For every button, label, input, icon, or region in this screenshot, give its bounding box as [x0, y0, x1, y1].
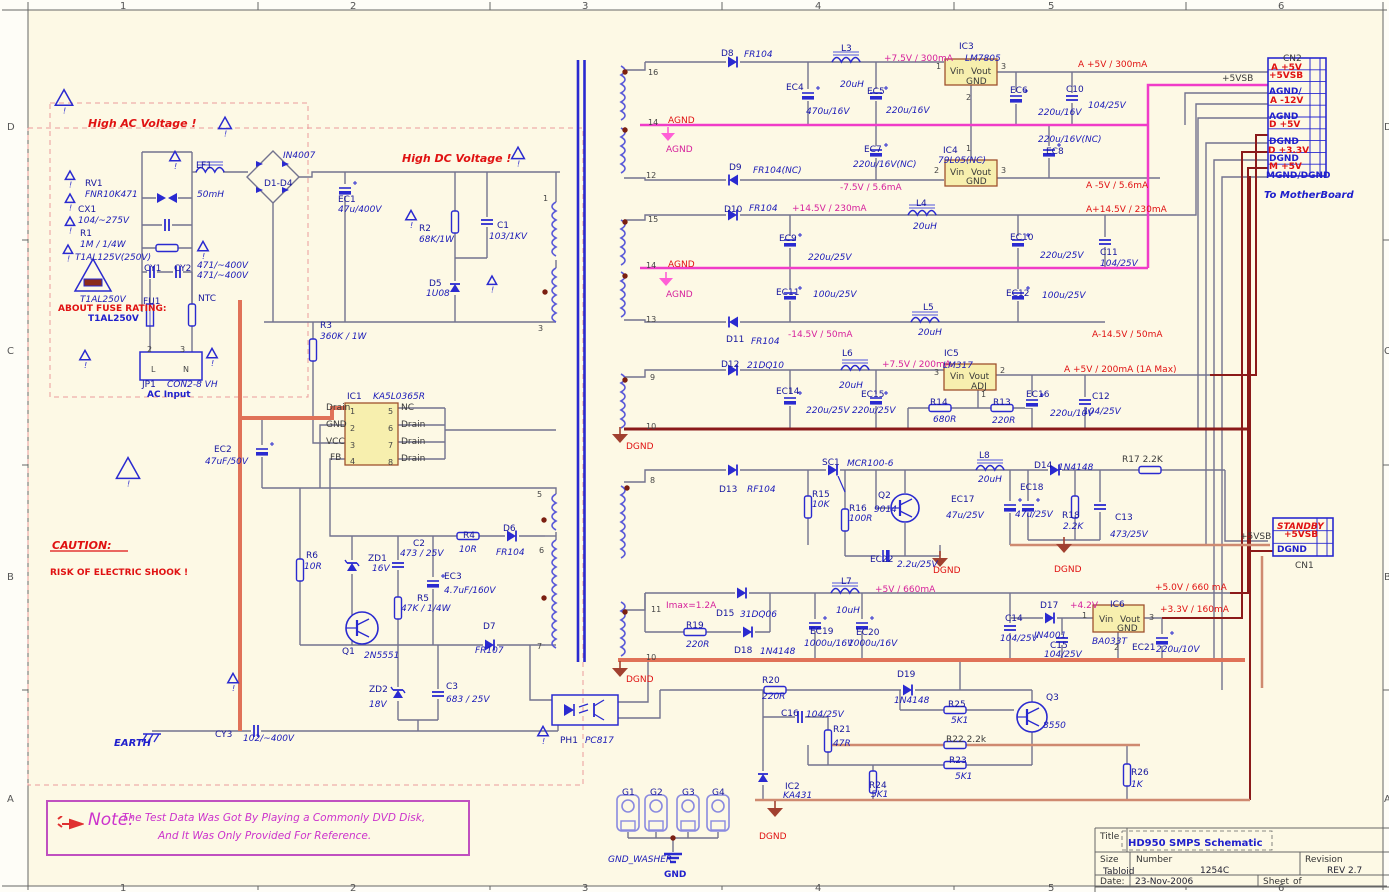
schematic-label: 1: [981, 390, 986, 400]
schematic-label: 8: [650, 476, 655, 486]
schematic-label: +5VSB: [1222, 74, 1253, 84]
schematic-label: MCR100-6: [847, 459, 893, 469]
schematic-label: 220u/25V: [1040, 251, 1084, 261]
lug-symbol: [617, 795, 639, 831]
schematic-label: DGND: [626, 442, 654, 452]
schematic-label: R1: [80, 229, 92, 239]
dot-symbol: [624, 485, 629, 490]
wire: [1230, 168, 1268, 593]
schematic-label: 473 / 25V: [400, 549, 444, 559]
schematic-label: D14: [1034, 461, 1052, 471]
res-v-symbol: [1124, 764, 1131, 786]
dot-symbol: [670, 835, 675, 840]
ruler-column-label: 1: [120, 1, 126, 12]
ecap-v-symbol: [255, 442, 274, 457]
schematic-label: Vin: [950, 67, 964, 77]
tri-symbol: !: [406, 210, 416, 229]
schematic-label: +5VSB: [1284, 530, 1318, 540]
schematic-label: A-14.5V / 50mA: [1092, 330, 1163, 340]
ind-h-symbol: [841, 360, 869, 370]
schematic-label: 1000u/16V: [804, 639, 853, 649]
schematic-label: C13: [1115, 513, 1133, 523]
svg-text:!: !: [127, 479, 130, 488]
schematic-label: 9: [650, 373, 655, 383]
ruler-column-label: 4: [815, 883, 821, 892]
schematic-label: EC12: [1006, 289, 1029, 299]
schematic-label: G4: [712, 788, 725, 798]
schematic-label: 2: [934, 166, 939, 176]
schematic-label: KA431: [783, 791, 812, 801]
schematic-canvas: !!!!!!!!!!!!!!!!: [0, 0, 1389, 892]
schematic-label: EC11: [776, 288, 799, 298]
wire: [1225, 470, 1268, 541]
cap-v-symbol: [1003, 623, 1017, 633]
schematic-label: 10: [646, 422, 656, 432]
svg-text:!: !: [211, 359, 214, 368]
schematic-label: L3: [841, 44, 852, 54]
schematic-label: +4.2V: [1070, 601, 1098, 611]
note-line2: And It Was Only Provided For Reference.: [158, 830, 371, 842]
schematic-label: 21DQ10: [747, 361, 784, 371]
res-v-symbol: [805, 496, 812, 518]
schematic-label: 220u/16V(NC): [1038, 135, 1102, 145]
schematic-label: L8: [979, 451, 990, 461]
schematic-label: 10R: [304, 562, 322, 572]
schematic-label: NC: [401, 403, 414, 413]
varis-symbol: [156, 192, 178, 204]
gndp-symbol: [659, 272, 673, 286]
schematic-label: A -12V: [1270, 96, 1303, 106]
dot-symbol: [542, 289, 547, 294]
schematic-label: 11: [651, 605, 661, 615]
ruler-column-label: 4: [815, 1, 821, 12]
schematic-label: FR104: [751, 337, 780, 347]
size-value: Tabloid: [1103, 867, 1134, 877]
schematic-label: 6: [388, 424, 393, 434]
schematic-label: 680R: [933, 415, 956, 425]
schematic-label: GND_WASHER: [608, 855, 672, 865]
dot-symbol: [622, 609, 627, 614]
schematic-label: IN4007: [283, 151, 315, 161]
ruler-column-label: 5: [1048, 1, 1054, 12]
schematic-label: Q3: [1046, 693, 1059, 703]
schematic-label: VCC: [326, 437, 345, 447]
schematic-label: DGND: [1277, 545, 1307, 555]
schematic-label: CN1: [1295, 561, 1314, 571]
ruler-row-label: B: [7, 572, 14, 583]
tri-symbol: !: [63, 245, 72, 263]
wire: [624, 62, 645, 70]
schematic-label: 5: [388, 407, 393, 417]
tri-symbol: !: [65, 194, 74, 212]
schematic-label: -14.5V / 50mA: [788, 330, 853, 340]
schematic-label: R14: [930, 398, 948, 408]
wire: [624, 370, 944, 377]
schematic-label: G1: [622, 788, 635, 798]
wire: [618, 690, 660, 718]
schematic-label: IC5: [944, 349, 959, 359]
schematic-label: CY1: [144, 264, 161, 274]
dio-h-symbol: [901, 684, 915, 696]
schematic-label: 47uF/50V: [205, 457, 248, 467]
dio-h-symbol: [726, 464, 740, 476]
tri-symbol: !: [228, 673, 238, 692]
schematic-label: EARTH: [114, 739, 151, 749]
schematic-label: 12: [646, 171, 656, 181]
cap-v-symbol: [391, 560, 405, 570]
schematic-label: 8550: [1043, 721, 1066, 731]
schematic-label: 7: [388, 441, 393, 451]
schematic-label: EC7: [864, 145, 882, 155]
schematic-label: Drain: [326, 403, 350, 413]
coil-symbol: [552, 268, 556, 322]
gndp-symbol: [661, 127, 675, 141]
schematic-label: C14: [1005, 614, 1023, 624]
svg-text:!: !: [84, 361, 87, 370]
dot-symbol: [622, 69, 627, 74]
schematic-label: D7: [483, 622, 496, 632]
schematic-label: CON2-8 VH: [167, 380, 218, 390]
schematic-label: D10: [724, 205, 742, 215]
ruler-column-label: 2: [350, 1, 356, 12]
schematic-label: 6: [539, 546, 544, 556]
dot-symbol: [622, 219, 627, 224]
schematic-label: EC16: [1026, 390, 1049, 400]
dio-v-symbol: [757, 771, 769, 785]
schematic-label: R23: [949, 756, 967, 766]
schematic-label: Vout: [971, 67, 991, 77]
schematic-label: 5: [537, 490, 542, 500]
schematic-label: 10R: [459, 545, 477, 555]
schematic-label: DGND: [1054, 565, 1082, 575]
ruler-column-label: 1: [120, 883, 126, 892]
sheet-label: Sheet: [1263, 877, 1289, 887]
svg-text:!: !: [69, 180, 72, 189]
schematic-label: 20uH: [839, 381, 863, 391]
schematic-label: C16: [781, 709, 799, 719]
ruler-column-label: 6: [1278, 883, 1284, 892]
lug-symbol: [645, 795, 667, 831]
schematic-label: +7.5V / 200mA: [882, 360, 951, 370]
schematic-label: 47u/25V: [1015, 510, 1053, 520]
schematic-label: 104/25V: [1044, 650, 1082, 660]
wire: [624, 178, 944, 180]
schematic-label: FR104: [749, 204, 778, 214]
schematic-label: D6: [503, 524, 516, 534]
schematic-label: L5: [923, 303, 934, 313]
revision-label: Revision: [1305, 855, 1343, 865]
schematic-label: 1: [936, 62, 941, 72]
schematic-label: 1: [1082, 611, 1087, 621]
schematic-label: NTC: [198, 294, 216, 304]
sheet-of-label: of: [1293, 877, 1302, 887]
schematic-label: RISK OF ELECTRIC SHOOK !: [50, 568, 188, 578]
coil-symbol: [621, 128, 625, 173]
cap-h-symbol: [162, 218, 172, 232]
coil-symbol: [552, 494, 556, 530]
schematic-label: R4: [463, 531, 475, 541]
schematic-label: EC14: [776, 387, 799, 397]
schematic-label: 220u/16V: [1038, 108, 1082, 118]
schematic-label: R15: [812, 490, 830, 500]
schematic-label: 104/25V: [806, 710, 844, 720]
schematic-label: 102/~400V: [243, 734, 294, 744]
schematic-label: C3: [446, 682, 458, 692]
schematic-label: ZD1: [368, 554, 387, 564]
ruler-row-label: D: [1384, 122, 1389, 133]
svg-text:!: !: [69, 203, 72, 212]
tri-symbol: !: [538, 726, 548, 745]
tri-symbol: !: [512, 147, 525, 168]
schematic-label: 47u/25V: [946, 511, 984, 521]
tri-symbol: !: [170, 151, 180, 170]
wire: [330, 459, 352, 536]
schematic-label: IN4001: [1034, 631, 1066, 641]
dio-h-symbol: [726, 174, 740, 186]
schematic-label: D9: [729, 163, 742, 173]
schematic-label: R22 2.2k: [946, 735, 986, 745]
schematic-label: 1: [966, 144, 971, 154]
schematic-label: +5VSB: [1269, 71, 1303, 81]
schematic-label: 360K / 1W: [320, 332, 366, 342]
res-v-symbol: [452, 211, 459, 233]
schematic-label: 3: [538, 324, 543, 334]
coil-symbol: [552, 202, 556, 256]
schematic-label: 16: [648, 68, 658, 78]
schematic-label: 103/1KV: [489, 232, 527, 242]
dot-symbol: [541, 517, 546, 522]
schematic-label: 220R: [762, 692, 785, 702]
schematic-label: EC18: [1020, 483, 1043, 493]
ftri-symbol: [75, 259, 111, 291]
schematic-label: JP1: [142, 380, 156, 390]
schematic-label: R17 2.2K: [1122, 455, 1163, 465]
wire: [1210, 135, 1268, 375]
schematic-label: FB: [330, 453, 341, 463]
schematic-label: 3: [1149, 613, 1154, 623]
schematic-label: D11: [726, 335, 744, 345]
dot-symbol: [622, 273, 627, 278]
schematic-label: EC22: [870, 555, 893, 565]
schematic-label: 220u/25V: [852, 406, 896, 416]
svg-text:!: !: [174, 162, 177, 171]
schematic-label: MGND/DGND: [1266, 171, 1331, 181]
schematic-label: LM317: [943, 361, 973, 371]
svg-text:!: !: [69, 226, 72, 235]
schematic-label: 1N4148: [1058, 463, 1093, 473]
zen-v-symbol: [345, 560, 359, 574]
ruler-row-label: D: [7, 122, 15, 133]
schematic-label: 20uH: [918, 328, 942, 338]
ruler-column-label: 2: [350, 883, 356, 892]
tri-symbol: !: [116, 458, 139, 489]
schematic-label: A +5V / 200mA (1A Max): [1064, 365, 1177, 375]
schematic-label: 3: [934, 368, 939, 378]
schematic-label: 220u/25V: [808, 253, 852, 263]
schematic-label: R19: [686, 621, 704, 631]
svg-text:!: !: [517, 160, 520, 169]
schematic-label: 1N4148: [760, 647, 795, 657]
schematic-label: D12: [721, 360, 739, 370]
schematic-label: 16V: [372, 564, 390, 574]
schematic-label: 20uH: [978, 475, 1002, 485]
schematic-label: 20uH: [840, 80, 864, 90]
schematic-label: 473/25V: [1110, 530, 1148, 540]
schematic-label: 3: [350, 441, 355, 451]
schematic-label: GND: [664, 870, 686, 880]
schematic-label: D1-D4: [264, 179, 293, 189]
revision-value: REV 2.7: [1327, 866, 1362, 876]
schematic-label: High DC Voltage !: [402, 154, 511, 164]
schematic-label: +7.5V / 300mA: [884, 54, 953, 64]
date-label: Date:: [1100, 877, 1125, 887]
schematic-label: 1M / 1/4W: [80, 240, 126, 250]
schematic-label: FR104: [744, 50, 773, 60]
schematic-label: AGND: [668, 116, 695, 126]
schematic-label: 50mH: [197, 190, 224, 200]
schematic-label: D8: [721, 49, 734, 59]
schematic-label: Drain: [401, 437, 425, 447]
rectb-symbol: [140, 352, 202, 380]
schematic-sheet: !!!!!!!!!!!!!!!! Note: The Test Data Was…: [0, 0, 1389, 892]
ecap-v-symbol: [1155, 631, 1174, 646]
tri-symbol: !: [207, 348, 217, 367]
schematic-label: To MotherBoard: [1264, 191, 1354, 201]
schematic-label: FNR10K471: [85, 190, 138, 200]
schematic-label: PC817: [585, 736, 614, 746]
schematic-label: G2: [650, 788, 663, 798]
gndr-symbol: [767, 801, 783, 817]
wire: [1162, 152, 1268, 618]
res-h-symbol: [156, 245, 178, 252]
ruler-row-label: A: [7, 794, 14, 805]
ind-h-symbol: [976, 460, 1004, 470]
date-value: 23-Nov-2006: [1135, 877, 1193, 887]
schematic-label: R5: [417, 594, 429, 604]
schematic-label: R18: [1062, 511, 1080, 521]
schematic-label: IC4: [943, 146, 958, 156]
schematic-label: R6: [306, 551, 318, 561]
schematic-label: 2: [350, 424, 355, 434]
schematic-label: 104/25V: [1100, 259, 1138, 269]
cap-v-symbol: [1078, 397, 1092, 407]
schematic-label: 220R: [992, 416, 1015, 426]
schematic-label: T1AL250V: [88, 314, 139, 324]
schematic-label: 3: [1001, 62, 1006, 72]
schematic-label: L7: [841, 577, 852, 587]
cap-v-symbol: [431, 689, 445, 699]
schematic-label: R20: [762, 676, 780, 686]
schematic-label: GND: [1117, 624, 1138, 634]
dio-h-symbol: [741, 626, 755, 638]
schematic-label: 220u/16V(NC): [853, 160, 917, 170]
schematic-label: +3.3V / 160mA: [1160, 605, 1229, 615]
cap-v-symbol: [480, 217, 494, 227]
schematic-label: EC19: [810, 627, 833, 637]
schematic-label: Q2: [878, 491, 891, 501]
wire: [50, 103, 308, 397]
schematic-label: D18: [734, 646, 752, 656]
schematic-label: FR107: [475, 646, 504, 656]
schematic-label: CAUTION:: [52, 541, 112, 551]
schematic-label: 220u/10V: [1156, 645, 1200, 655]
schematic-label: 2.2u/25V: [897, 560, 938, 570]
schematic-label: LF1: [196, 161, 212, 171]
schematic-label: EC15: [861, 390, 884, 400]
schematic-label: D5: [429, 279, 442, 289]
schematic-label: 100R: [849, 514, 872, 524]
schematic-label: R13: [993, 398, 1011, 408]
schematic-label: T1AL125V(250V): [75, 253, 151, 263]
dot-symbol: [541, 595, 546, 600]
schematic-label: R21: [833, 725, 851, 735]
res-h-symbol: [1139, 467, 1161, 474]
schematic-label: 1K: [1131, 780, 1143, 790]
ruler-column-label: 3: [582, 883, 588, 892]
ruler-row-label: B: [1384, 572, 1389, 583]
schematic-label: PH1: [560, 736, 578, 746]
schematic-label: 7: [537, 642, 542, 652]
schematic-label: FR104(NC): [753, 166, 802, 176]
cap-v-symbol: [1098, 237, 1112, 247]
schematic-label: D13: [719, 485, 737, 495]
schematic-label: 100u/25V: [813, 290, 857, 300]
dot-symbol: [622, 377, 627, 382]
schematic-label: BA033T: [1092, 637, 1127, 647]
schematic-label: Drain: [401, 454, 425, 464]
wire: [530, 645, 552, 700]
schematic-label: A -5V / 5.6mA: [1086, 181, 1148, 191]
number-label: Number: [1136, 855, 1172, 865]
size-label: Size: [1100, 855, 1118, 865]
tri-symbol: !: [80, 350, 90, 369]
schematic-label: +5VSB: [1240, 532, 1271, 542]
schematic-label: L4: [916, 199, 927, 209]
schematic-label: IC6: [1110, 600, 1125, 610]
schematic-label: EC17: [951, 495, 974, 505]
schematic-label: 1: [543, 194, 548, 204]
schematic-label: 31DQ06: [740, 610, 777, 620]
res-v-symbol: [310, 339, 317, 361]
svg-text:!: !: [232, 684, 235, 693]
schematic-label: 47K / 1/4W: [401, 604, 451, 614]
schematic-label: 9014: [874, 505, 897, 515]
schematic-label: 2N5551: [364, 651, 399, 661]
schematic-label: D19: [897, 670, 915, 680]
title-label: Title: [1100, 832, 1119, 842]
schematic-label: R26: [1131, 768, 1149, 778]
schematic-label: 5K1: [955, 772, 972, 782]
ruler-column-label: 3: [582, 1, 588, 12]
schematic-label: R25: [948, 700, 966, 710]
schematic-label: FU1: [143, 297, 161, 307]
schematic-label: 5K1: [951, 716, 968, 726]
tri-symbol: !: [65, 171, 74, 189]
schematic-label: C11: [1100, 248, 1118, 258]
coil-symbol: [552, 540, 556, 648]
lug-symbol: [677, 795, 699, 831]
svg-text:!: !: [491, 285, 494, 294]
schematic-label: 1: [350, 407, 355, 417]
zen-v-symbol: [391, 687, 405, 701]
schematic-label: 104/25V: [1088, 101, 1126, 111]
schematic-label: LM7805: [965, 54, 1001, 64]
wire: [1206, 143, 1268, 545]
schematic-label: +5.0V / 660 mA: [1155, 583, 1227, 593]
wire: [298, 172, 560, 177]
schematic-label: Vin: [1099, 615, 1113, 625]
schematic-label: 8: [388, 458, 393, 468]
